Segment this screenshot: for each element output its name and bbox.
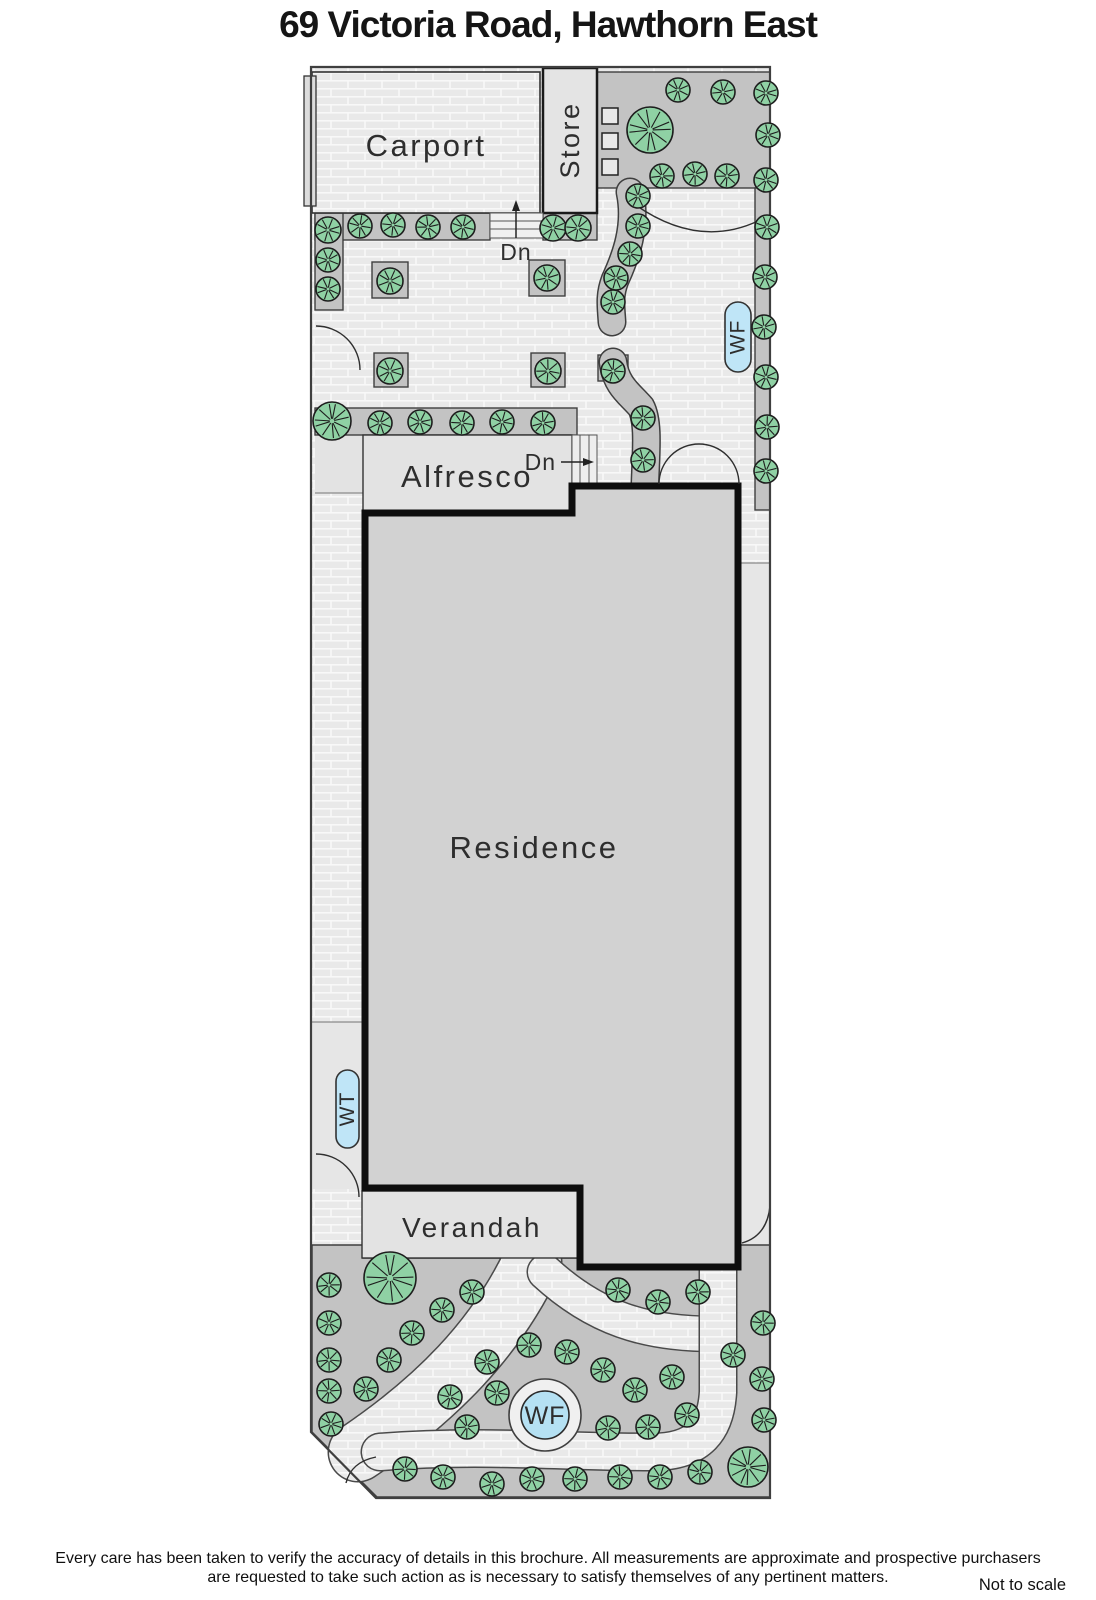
tree (660, 1365, 684, 1389)
tree (531, 411, 555, 435)
tree (563, 1467, 587, 1491)
tree (626, 184, 650, 208)
tree (517, 1333, 541, 1357)
tree (381, 213, 405, 237)
tree (752, 1408, 776, 1432)
alfresco-label: Alfresco (401, 459, 533, 494)
tree (535, 358, 561, 384)
scale-note: Not to scale (979, 1576, 1066, 1595)
site-plan: WF WT Carport Store Dn Alfresco Dn Resid… (0, 0, 1096, 1600)
right-lawn-strip (741, 563, 770, 1245)
tree (565, 215, 591, 241)
page: 69 Victoria Road, Hawthorn East (0, 0, 1096, 1600)
wf-marker-label: WF (727, 320, 750, 355)
tree (319, 1412, 343, 1436)
tree (377, 268, 403, 294)
tree (317, 1379, 341, 1403)
wf-marker: WF (725, 302, 751, 372)
tree (364, 1252, 416, 1304)
tree (631, 406, 655, 430)
tree (416, 215, 440, 239)
dn-top-label: Dn (500, 239, 531, 265)
tree (751, 1311, 775, 1335)
tree (348, 214, 372, 238)
tree (400, 1321, 424, 1345)
tree (451, 215, 475, 239)
tree (377, 358, 403, 384)
tree (646, 1290, 670, 1314)
tree (490, 410, 514, 434)
disclaimer-line1: Every care has been taken to verify the … (0, 1549, 1096, 1568)
tree (430, 1298, 454, 1322)
verandah-label: Verandah (402, 1212, 542, 1243)
tree (728, 1447, 768, 1487)
tree (591, 1358, 615, 1382)
planter-square (602, 108, 618, 124)
tree (648, 1465, 672, 1489)
tree (313, 402, 351, 440)
tree (408, 410, 432, 434)
tree (520, 1467, 544, 1491)
tree (534, 265, 560, 291)
tree (316, 248, 340, 272)
tree (752, 315, 776, 339)
tree (686, 1280, 710, 1304)
tree (354, 1377, 378, 1401)
residence-label: Residence (450, 830, 619, 865)
tree (485, 1381, 509, 1405)
tree (711, 80, 735, 104)
tree (683, 162, 707, 186)
store-label: Store (555, 101, 585, 178)
tree (750, 1367, 774, 1391)
tree (650, 164, 674, 188)
tree (393, 1457, 417, 1481)
residence (365, 486, 738, 1267)
tree (626, 214, 650, 238)
tree (317, 1311, 341, 1335)
planter-squares (602, 108, 618, 175)
tree (618, 242, 642, 266)
wt-marker-label: WT (336, 1092, 359, 1127)
tree (754, 81, 778, 105)
disclaimer-line2: are requested to take such action as is … (0, 1568, 1096, 1587)
tree (627, 107, 673, 153)
tree (666, 78, 690, 102)
tree (721, 1343, 745, 1367)
left-upper-strip (315, 435, 363, 493)
tree (608, 1465, 632, 1489)
tree (317, 1273, 341, 1297)
tree (623, 1378, 647, 1402)
footer-disclaimer: Every care has been taken to verify the … (0, 1549, 1096, 1587)
carport-label: Carport (366, 128, 487, 163)
tree (606, 1278, 630, 1302)
tree (753, 265, 777, 289)
planter-square (602, 159, 618, 175)
tree (431, 1465, 455, 1489)
tree (460, 1280, 484, 1304)
tree (675, 1403, 699, 1427)
tree (540, 215, 566, 241)
tree (756, 123, 780, 147)
tree (555, 1340, 579, 1364)
tree (601, 290, 625, 314)
tree (475, 1350, 499, 1374)
tree (480, 1472, 504, 1496)
tree (631, 448, 655, 472)
tree (368, 411, 392, 435)
tree (636, 1415, 660, 1439)
tree (755, 415, 779, 439)
wf-circle-label: WF (525, 1402, 566, 1430)
wt-marker: WT (336, 1070, 359, 1148)
tree (438, 1385, 462, 1409)
tree (755, 215, 779, 239)
tree (754, 365, 778, 389)
tree (315, 217, 341, 243)
tree (604, 266, 628, 290)
planter-square (602, 133, 618, 149)
tree (601, 359, 625, 383)
tree (754, 168, 778, 192)
tree (316, 277, 340, 301)
tree (377, 1348, 401, 1372)
tree (596, 1416, 620, 1440)
dn-alfresco-label: Dn (525, 449, 556, 475)
tree (688, 1460, 712, 1484)
tree (715, 164, 739, 188)
tree (317, 1348, 341, 1372)
tree (455, 1415, 479, 1439)
tree (754, 459, 778, 483)
tree (450, 411, 474, 435)
